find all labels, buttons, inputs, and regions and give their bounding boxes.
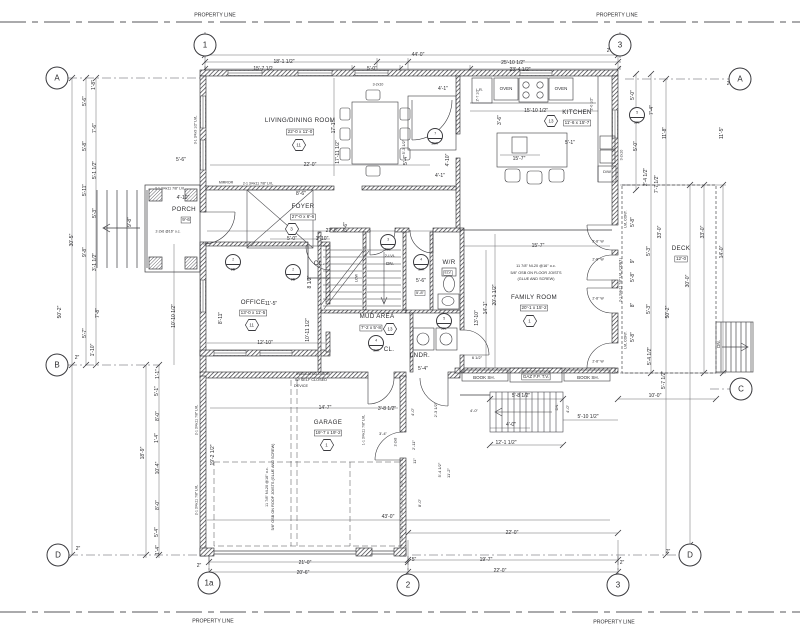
room-size: 12'-0 xyxy=(675,256,688,262)
dim-label: 8'-0" xyxy=(418,499,422,507)
room-label: CL. xyxy=(314,261,325,267)
dim-label: DEVICE xyxy=(294,384,308,388)
dim-label: 18'-1 1/2" xyxy=(273,60,294,65)
grid-bubble-1a: 1a xyxy=(198,572,221,595)
dim-label: 5'-6" xyxy=(176,158,186,163)
dim-label: 1'-10" xyxy=(316,237,329,242)
dim-label: 7'-6" xyxy=(93,123,98,133)
dim-label: 30'-0" xyxy=(686,275,691,288)
dim-label: 5'-7 1/2" xyxy=(662,371,667,389)
dim-label: 9'-8" xyxy=(128,217,133,227)
dim-label: 2-1 3/4x11 7/8" LVL xyxy=(243,182,273,186)
dim-label: 10'-0" xyxy=(649,394,662,399)
dim-label: W/ SELF CLOSED xyxy=(295,378,327,382)
dim-label: 5'-0" xyxy=(367,67,377,72)
dim-label: 9" xyxy=(631,259,636,264)
dim-label: 3-1 3/4x9 1/2" LVL xyxy=(194,116,198,145)
dim-label: 6'-6" xyxy=(344,222,349,232)
dim-label: 5'-3" xyxy=(93,208,98,218)
room-label: GARAGE xyxy=(314,420,342,426)
dim-label: 5'-6" xyxy=(416,279,426,284)
floor-plan-sheet: PROPERTY LINE PROPERTY LINE PROPERTY LIN… xyxy=(0,0,800,640)
dim-label: 4'-0" xyxy=(566,405,570,413)
dim-label: 2" xyxy=(197,564,202,569)
dim-label: 5'-10 1/2" xyxy=(577,415,598,420)
dim-label: 8'-6" xyxy=(296,192,306,197)
dim-label: 15'-7" xyxy=(513,157,526,162)
dim-label: 20'-1 1/2" xyxy=(493,284,498,305)
dim-label: 5'-8" xyxy=(83,141,88,151)
dim-label: 3'-1 1/2" xyxy=(93,253,98,271)
dim-label: 5'-0" xyxy=(634,141,639,151)
dim-label: 17'-11 1/2" xyxy=(336,140,341,163)
dim-label: 43'-0" xyxy=(382,515,395,520)
door-tag: 72BR xyxy=(427,128,443,144)
dim-label: 7'-4" xyxy=(650,105,655,115)
dim-label: 33'-0" xyxy=(658,226,663,239)
dim-label: 13'-10" xyxy=(475,310,480,326)
dim-label: DN. xyxy=(717,340,722,348)
dim-label: 50'-2" xyxy=(58,306,63,319)
dim-label: 3-2x10 xyxy=(373,83,384,87)
grid-bubble-D: D xyxy=(47,544,70,567)
dim-label: 14'-7" xyxy=(319,406,332,411)
door-tag: 530L xyxy=(629,107,645,123)
dim-label: GAZ F.P. T.V. xyxy=(522,374,551,380)
room-tag-hexagon: 11 xyxy=(245,319,259,331)
dim-label: 7'-8" xyxy=(96,308,101,318)
grid-bubble-A: A xyxy=(46,67,69,90)
dim-label: 21'-0" xyxy=(299,561,312,566)
dim-label: DN. xyxy=(386,262,394,267)
dim-label: 5'-4" xyxy=(404,155,409,165)
dim-label: 5'-1" xyxy=(565,141,575,146)
dim-label: 11 7/8" NI-20 @16" o.c. xyxy=(516,264,556,268)
dim-label: 5" xyxy=(412,558,417,563)
dim-label: 11" xyxy=(413,458,417,464)
dim-label: 11'-5" xyxy=(265,302,277,307)
grid-bubble-D: D xyxy=(679,544,702,567)
grid-bubble-C: C xyxy=(730,378,753,401)
room-label: CL. xyxy=(384,347,395,353)
dim-label: 5'-8" xyxy=(631,217,636,227)
dim-label: 15'-7 1/2 xyxy=(253,67,272,72)
room-tag-hexagon: 13 xyxy=(383,323,397,335)
room-label: FAMILY ROOM xyxy=(511,295,557,301)
dim-label: 5'-4 1/2" xyxy=(438,463,442,478)
dim-label: 10'-4" xyxy=(156,462,161,475)
room-label: LNDR. xyxy=(410,353,430,359)
room-label: FOYER xyxy=(292,204,315,210)
grid-bubble-1: 1 xyxy=(194,34,217,57)
dim-label: 27'-0" xyxy=(326,229,339,234)
dim-label: 10'-10 1/2" xyxy=(172,304,177,328)
dim-label: 4'-1" xyxy=(438,87,448,92)
dim-label: 5'-6" xyxy=(83,96,88,106)
dim-label: 5'-1" xyxy=(155,386,160,396)
dim-label: 2'-7 1/2" xyxy=(476,89,480,102)
dim-label: 8'-0" xyxy=(156,411,161,421)
dim-label: 12'-10" xyxy=(257,341,273,346)
grid-bubble-2: 2 xyxy=(397,574,420,597)
dim-label: LOW xyxy=(355,274,359,282)
dim-label: BOOK SH. xyxy=(577,376,599,381)
dim-label: 5'-8" xyxy=(415,290,425,296)
dim-label: 11 7/8" NI-20 @16" o.c. xyxy=(265,467,269,507)
dim-label: 5'-4 1/2" xyxy=(648,347,653,365)
dim-label: 22'-0" xyxy=(494,569,507,574)
grid-bubble-3: 3 xyxy=(607,574,630,597)
dim-label: 5'-3" xyxy=(647,304,652,314)
dim-label: D/W xyxy=(603,170,611,174)
dim-label: (GLUE AND SCREW) xyxy=(518,277,555,281)
room-label: LIVING/DINING ROOM xyxy=(265,118,335,124)
dim-label: 5'-8" xyxy=(631,332,636,342)
dim-label: 12'-1 1/2" xyxy=(495,441,516,446)
room-size: 22'-0 x 11'-0 xyxy=(286,129,313,135)
dim-label: 5'-0" xyxy=(287,237,297,242)
dim-label: LVL CONT. xyxy=(624,210,628,227)
dim-label: 33'-0" xyxy=(701,226,706,239)
label-layer: 44'-0"18'-1 1/2"15'-7 1/25'-0"25'-10 1/2… xyxy=(0,0,800,640)
room-label: MUD AREA xyxy=(360,314,395,320)
dim-label: 8 1/2" xyxy=(308,276,313,289)
room-label: W/R xyxy=(443,260,456,266)
dim-label: 8'-0" xyxy=(156,500,161,510)
room-tag-hexagon: 1 xyxy=(320,439,334,451)
dim-label: 1'-1" xyxy=(156,369,161,379)
dim-label: 11'-8" xyxy=(663,127,668,139)
dim-label: 4'-10" xyxy=(446,154,451,167)
dim-label: 4'-0" xyxy=(506,423,516,428)
dim-label: OVEN xyxy=(500,87,513,92)
dim-label: 1'-4" xyxy=(156,545,161,555)
dim-label: 2" xyxy=(75,356,80,361)
dim-label: 4'-1" xyxy=(435,174,445,179)
dim-label: 15'-10 1/2" xyxy=(524,109,548,114)
room-label: OFFICE xyxy=(241,300,266,306)
dim-label: 9'-8" xyxy=(83,247,88,257)
dim-label: 3-2x10 xyxy=(620,150,624,161)
dim-label: 5/8" OSB ON FLOOR JOISTS xyxy=(511,271,562,275)
dim-label: 20'-6" xyxy=(297,571,310,576)
dim-label: 8'-11" xyxy=(219,312,224,324)
dim-label: 15'-7" xyxy=(532,244,545,249)
dim-label: 5'-8 1/2" xyxy=(512,394,530,399)
dim-label: 2-1 3/4x11 7/8" LVL xyxy=(195,485,199,515)
door-tag: 430R xyxy=(368,335,384,351)
dim-label: 19'-7" xyxy=(480,558,493,563)
dim-label: 14'-1" xyxy=(484,302,489,315)
dim-label: 1'-10" xyxy=(91,344,96,357)
dim-label: 4'-0" xyxy=(470,409,478,413)
dim-label: 2'-8" W xyxy=(592,360,603,364)
room-size: 11'-6 x 15'-7 xyxy=(563,120,590,126)
dim-label: ELV. xyxy=(443,271,452,276)
door-tag: 530L xyxy=(436,313,452,329)
dim-label: 6 1/2" xyxy=(472,356,482,360)
door-tag: 22B xyxy=(285,264,301,280)
dim-label: 18'-9" xyxy=(141,447,146,460)
door-tag: 430R xyxy=(413,254,429,270)
dim-label: 5'-3" xyxy=(647,246,652,256)
dim-label: 1'-4" xyxy=(155,433,160,443)
dim-label: MIRROR xyxy=(219,181,233,185)
room-size: 7'-2 x 5'-8 xyxy=(360,325,383,331)
dim-label: 2'-8" W xyxy=(592,258,603,262)
room-size: 9'-6 xyxy=(181,217,191,223)
room-tag-hexagon: 1 xyxy=(523,315,537,327)
room-tag-hexagon: 3 xyxy=(285,223,299,235)
grid-bubble-3: 3 xyxy=(609,34,632,57)
dim-label: 2-1 3/4x11 7/8" LVL xyxy=(195,405,199,435)
room-size: 20'-1 x 15'-2 xyxy=(520,305,548,311)
dim-label: 3'-6" xyxy=(498,115,503,125)
grid-bubble-B: B xyxy=(46,354,69,377)
dim-label: 5'-0" xyxy=(631,90,636,100)
dim-label: 44'-0" xyxy=(412,53,425,58)
dim-label: 2'-3 1/2" xyxy=(434,403,438,418)
dim-label: 2'-8" W xyxy=(592,297,603,301)
dim-label: 5'-1 1/2" xyxy=(93,161,98,179)
dim-label: BOOK SH. xyxy=(473,376,495,381)
dim-label: 3'-4" xyxy=(379,432,387,436)
dim-label: 14'-0" xyxy=(720,246,725,259)
dim-label: 2" xyxy=(666,550,671,555)
room-tag-hexagon: 11 xyxy=(292,139,306,151)
dim-label: 22'-0" xyxy=(506,531,519,536)
dim-label: 4'-0" xyxy=(411,408,415,416)
dim-label: 2-1 3/4x11 7/8" LVL (CONT.) xyxy=(619,258,623,302)
dim-label: 3'-8 1/2" xyxy=(378,407,396,412)
dim-label: 5'-3 1/2" xyxy=(402,140,406,155)
dim-label: 2-2x6 @16" o.c. xyxy=(155,230,180,234)
dim-label: 2-1 3/4x11 7/8" LVL xyxy=(155,187,185,191)
room-label: KITCHEN xyxy=(562,110,591,116)
dim-label: 5'-8" xyxy=(631,272,636,282)
dim-label: 2'-4 1/2" xyxy=(644,168,649,186)
dim-label: 2-LVL xyxy=(385,254,395,258)
dim-label: 1'-8" xyxy=(92,80,97,90)
dim-label: 5'-7" xyxy=(83,328,88,338)
room-size: 13'-0 x 11'-5 xyxy=(239,310,266,316)
room-size: 27'-0 x 6'-6 xyxy=(290,214,315,220)
dim-label: 8" xyxy=(631,303,636,308)
dim-label: 5'-4" xyxy=(418,367,428,372)
dim-label: 5/8" OSB ON ROOF JOISTS (GLUE AND SCREW) xyxy=(271,444,275,531)
dim-label: 50'-2" xyxy=(666,306,671,319)
dim-label: 7'-7 1/2" xyxy=(655,175,660,193)
door-tag: 22B xyxy=(225,254,241,270)
room-size: 19'-7 x 19'-2 xyxy=(314,430,342,436)
dim-label: DN. xyxy=(555,404,559,411)
room-label: DECK xyxy=(672,246,690,252)
room-tag-hexagon: 13 xyxy=(544,115,558,127)
dim-label: 19'-2 1/2" xyxy=(211,444,216,465)
dim-label: INSULATED DOOR xyxy=(296,372,330,376)
dim-label: 2'-11" xyxy=(412,440,416,450)
dim-label: LVL CONT. xyxy=(624,331,628,348)
room-label: PORCH xyxy=(172,207,196,213)
dim-label: 11'-5" xyxy=(720,127,725,139)
dim-label: 1-1 3/4x11 7/8" LVL xyxy=(362,415,366,445)
dim-label: 22'-0" xyxy=(304,163,317,168)
dim-label: 10'-11 1/2" xyxy=(306,318,311,341)
dim-label: 2-2x8 xyxy=(394,438,398,447)
dim-label: 5'-11" xyxy=(83,184,88,196)
door-tag: 330L xyxy=(380,234,396,250)
dim-label: 5'-4" xyxy=(155,527,160,537)
dim-label: 23'-4 1/2" xyxy=(509,68,530,73)
dim-label: 2" xyxy=(76,547,81,552)
dim-label: 2'-8" W xyxy=(592,240,603,244)
dim-label: 30'-5" xyxy=(70,234,75,247)
dim-label: OVEN xyxy=(555,87,568,92)
grid-bubble-A: A xyxy=(729,68,752,91)
dim-label: 2" xyxy=(620,561,625,566)
dim-label: 11'-2" xyxy=(447,468,451,478)
dim-label: 4'-10" xyxy=(177,196,190,201)
dim-label: 25'-10 1/2" xyxy=(501,61,525,66)
